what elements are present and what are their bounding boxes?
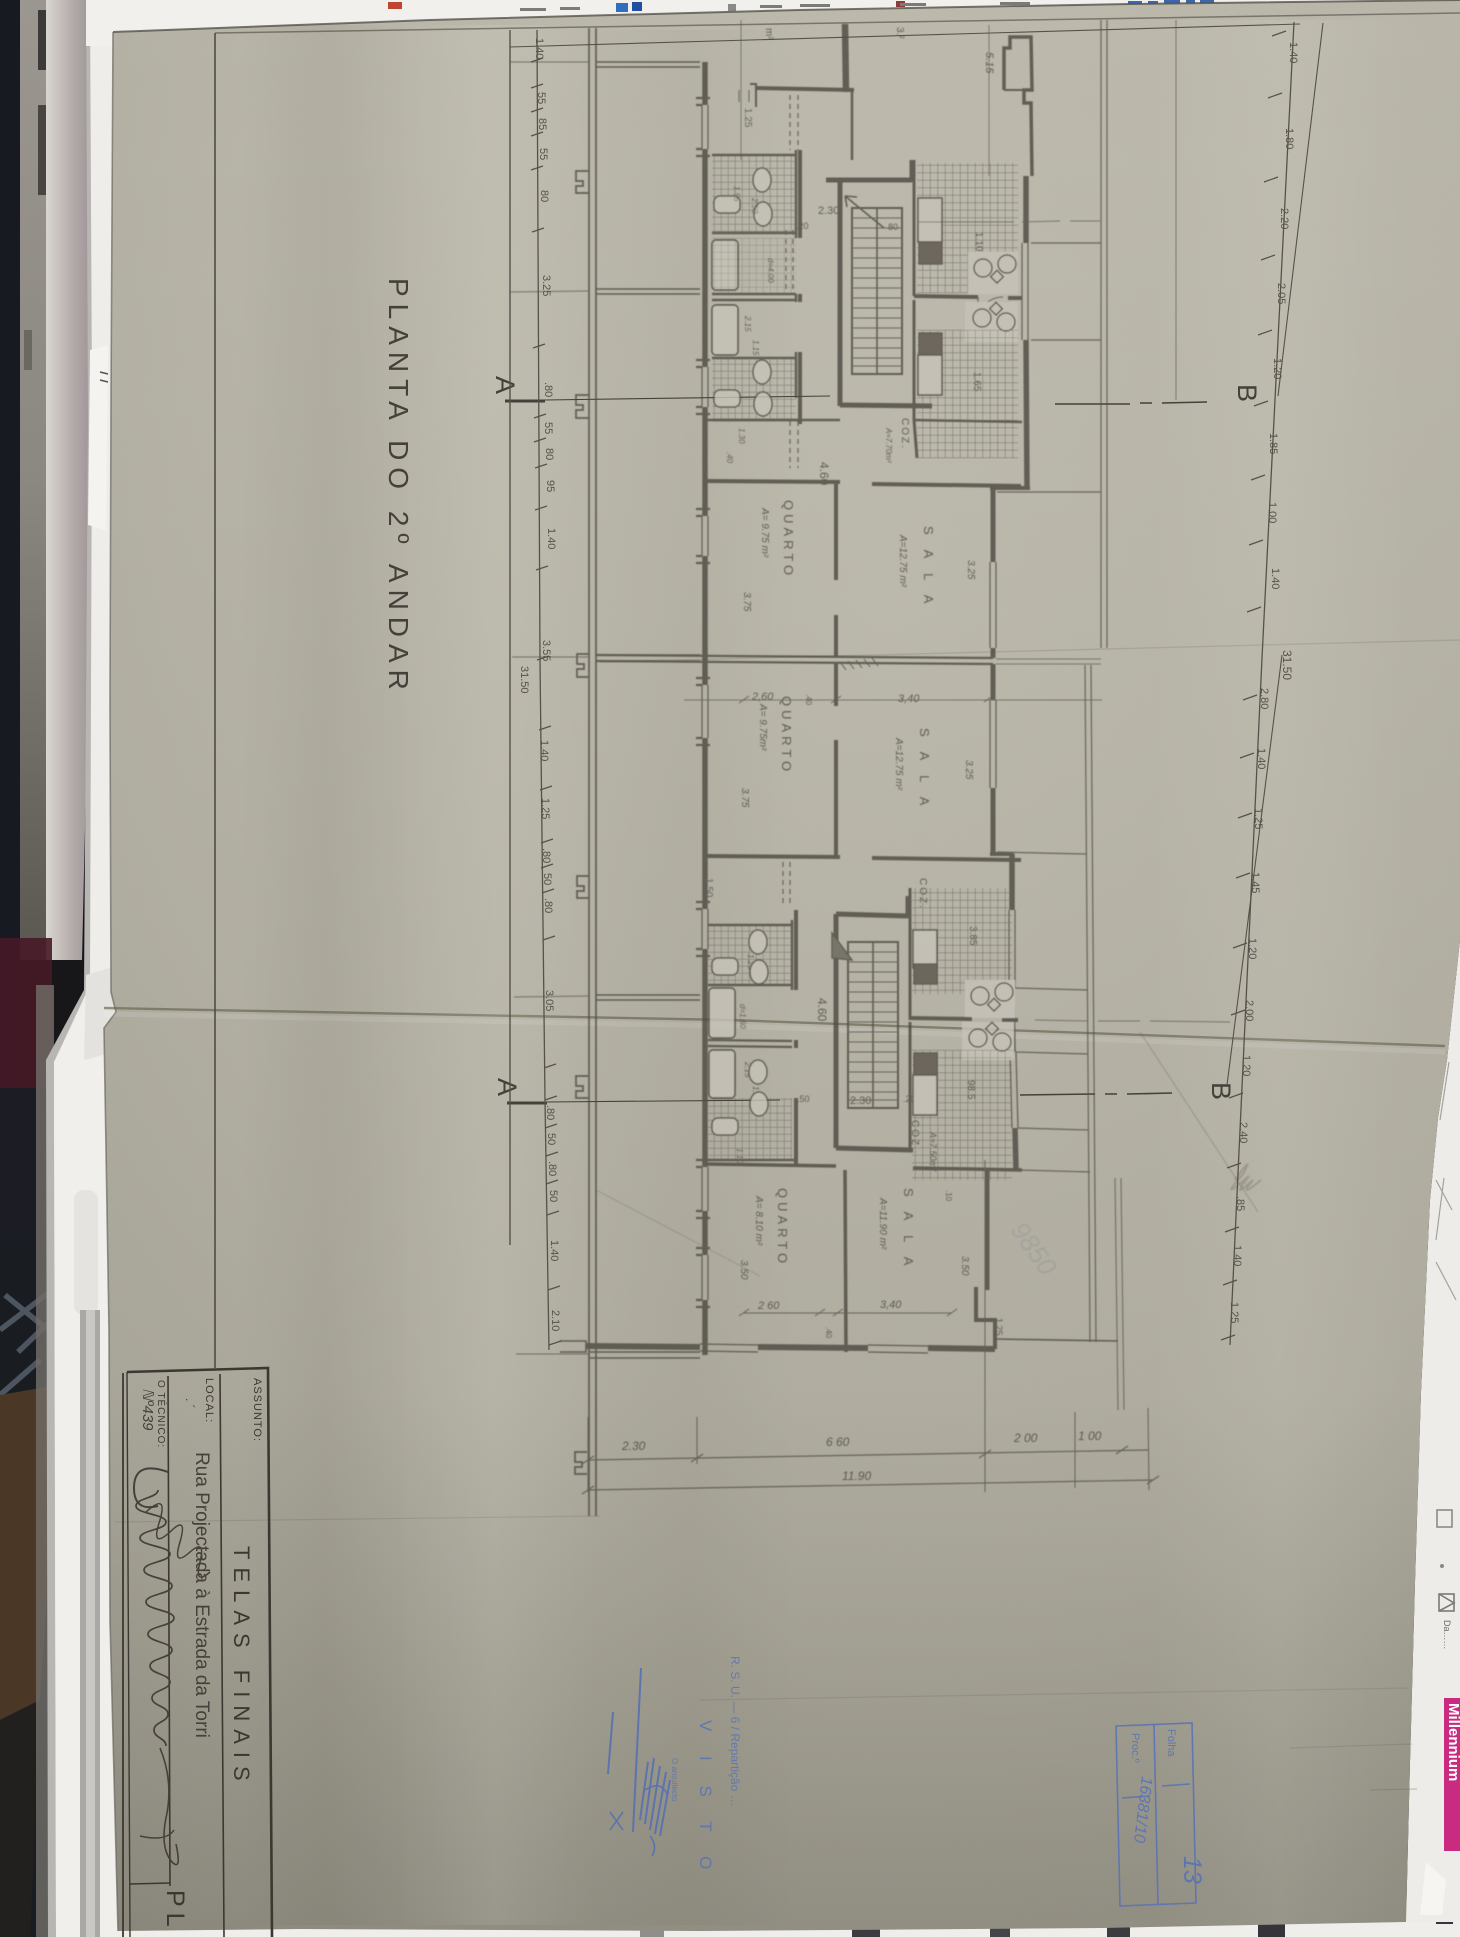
svg-text:.40: .40 <box>824 1327 833 1339</box>
svg-text:31.50: 31.50 <box>1280 650 1294 680</box>
svg-text:.80: .80 <box>546 1161 558 1176</box>
svg-text:3.55: 3.55 <box>540 640 552 661</box>
svg-text:QUARTO: QUARTO <box>775 1188 790 1267</box>
svg-text:2.30: 2.30 <box>818 205 839 217</box>
svg-text:S A L A: S A L A <box>917 728 932 811</box>
svg-text:1.40: 1.40 <box>548 1240 560 1261</box>
svg-text:2.20: 2.20 <box>1278 208 1290 229</box>
svg-text:1.80: 1.80 <box>1283 128 1295 149</box>
svg-text:3,40: 3,40 <box>898 693 920 705</box>
svg-text:5.15: 5.15 <box>983 52 995 74</box>
svg-text:O arquitecto: O arquitecto <box>670 1758 679 1802</box>
svg-text:50: 50 <box>541 873 553 885</box>
svg-text:QUARTO: QUARTO <box>781 500 796 579</box>
svg-text:3.25: 3.25 <box>963 760 974 780</box>
svg-text:80: 80 <box>538 190 550 202</box>
svg-text:55: 55 <box>535 92 547 104</box>
svg-text:2.15: 2.15 <box>743 315 752 332</box>
svg-text:.80: .80 <box>542 382 554 397</box>
svg-text:98.5: 98.5 <box>965 1080 976 1100</box>
svg-text:.50: .50 <box>797 1094 810 1104</box>
svg-text:3.25: 3.25 <box>540 275 552 296</box>
svg-text:Millennium: Millennium <box>1445 1703 1460 1781</box>
svg-text:A=11.90 m²: A=11.90 m² <box>877 1197 888 1250</box>
svg-text:2.30: 2.30 <box>621 1439 646 1453</box>
svg-text:1.40: 1.40 <box>538 740 550 761</box>
svg-text:1.20: 1.20 <box>1240 1055 1252 1076</box>
svg-text:Da……: Da…… <box>1442 1620 1452 1650</box>
svg-text:11.90: 11.90 <box>842 1469 871 1483</box>
svg-text:.80: .80 <box>540 848 552 863</box>
svg-text:.85: .85 <box>1234 1196 1246 1211</box>
svg-text:1.85: 1.85 <box>1267 433 1279 454</box>
svg-text:1.25: 1.25 <box>742 108 753 128</box>
svg-text:13: 13 <box>1178 1856 1206 1884</box>
svg-text:2.05: 2.05 <box>1275 283 1287 304</box>
svg-text:1.40: 1.40 <box>1287 42 1299 63</box>
svg-text:TELAS FINAIS: TELAS FINAIS <box>229 1546 254 1789</box>
svg-text:ℕº439: ℕº439 <box>139 1388 156 1431</box>
svg-text:PL: PL <box>161 1890 189 1933</box>
svg-text:COZ.: COZ. <box>899 418 910 450</box>
svg-text:Folha: Folha <box>1165 1729 1177 1757</box>
svg-text:R. S. U. — 6 / Repartição …: R. S. U. — 6 / Repartição … <box>728 1656 742 1807</box>
svg-text:S A L A: S A L A <box>921 526 936 609</box>
svg-text:A= 9.75m²: A= 9.75m² <box>757 703 768 751</box>
svg-text:d=4.00: d=4.00 <box>766 258 775 283</box>
svg-text:ASSUNTO:: ASSUNTO: <box>251 1378 263 1442</box>
svg-text:6 60: 6 60 <box>826 1435 850 1449</box>
svg-text:2.00: 2.00 <box>1243 1000 1255 1021</box>
svg-text:S A L A: S A L A <box>901 1188 916 1271</box>
svg-text:55: 55 <box>542 422 554 434</box>
svg-text:. ´: . ´ <box>183 1398 197 1409</box>
svg-text:1.00: 1.00 <box>1266 502 1278 523</box>
svg-text:1 00: 1 00 <box>1078 1429 1102 1443</box>
svg-text:A= 9.75 m²: A= 9.75 m² <box>759 507 770 558</box>
svg-text:3.85: 3.85 <box>967 926 978 946</box>
svg-text:1.45: 1.45 <box>1249 872 1261 893</box>
svg-text:2 60: 2 60 <box>757 1300 780 1312</box>
svg-text:3.25: 3.25 <box>965 560 976 580</box>
svg-text:3.50: 3.50 <box>738 1260 749 1280</box>
svg-text:1.25: 1.25 <box>539 798 551 819</box>
svg-text:1.40: 1.40 <box>1255 748 1267 769</box>
svg-text:55: 55 <box>537 148 549 160</box>
svg-text:1.25: 1.25 <box>994 1318 1004 1336</box>
svg-text:2.40: 2.40 <box>1237 1122 1249 1143</box>
svg-text:2,60: 2,60 <box>751 691 774 703</box>
svg-text:50: 50 <box>545 1133 557 1145</box>
svg-text:1.40: 1.40 <box>1231 1245 1243 1266</box>
svg-text:COZ.: COZ. <box>909 1120 920 1152</box>
svg-text:1.25: 1.25 <box>1228 1302 1240 1323</box>
svg-text:A≈7.70m²: A≈7.70m² <box>884 427 893 463</box>
svg-text:.80: .80 <box>544 1105 556 1120</box>
svg-text:1.50: 1.50 <box>703 878 714 898</box>
svg-text:3.50: 3.50 <box>959 1256 970 1276</box>
svg-text:1.40: 1.40 <box>1269 568 1281 589</box>
svg-text:A≈7.50m²: A≈7.50m² <box>928 1131 938 1172</box>
svg-text:4.60: 4.60 <box>815 998 829 1022</box>
svg-text:.40: .40 <box>804 694 813 706</box>
svg-text:.10: .10 <box>944 1190 953 1202</box>
svg-text:85: 85 <box>536 118 548 130</box>
svg-text:LOCAL:: LOCAL: <box>203 1378 215 1423</box>
svg-text:1.10: 1.10 <box>973 232 984 252</box>
svg-text:50: 50 <box>547 1190 559 1202</box>
svg-text:1.20: 1.20 <box>1271 358 1283 379</box>
svg-text:2.50: 2.50 <box>750 197 759 214</box>
svg-text:80: 80 <box>543 448 555 460</box>
svg-text:A: A <box>492 1078 522 1096</box>
svg-text:2.30: 2.30 <box>850 1095 871 1107</box>
svg-text:3.05: 3.05 <box>543 990 555 1011</box>
svg-text:3.²: 3.² <box>894 27 905 39</box>
svg-text:QUARTO: QUARTO <box>779 696 794 775</box>
svg-text:A=12.75 m²: A=12.75 m² <box>897 534 908 588</box>
svg-text:B: B <box>1232 384 1262 402</box>
svg-text:V I S T O: V I S T O <box>696 1720 715 1879</box>
svg-text:1.20: 1.20 <box>1246 938 1258 959</box>
svg-text:80: 80 <box>888 222 898 232</box>
svg-text:m²: m² <box>763 28 774 40</box>
svg-text:d=1.60: d=1.60 <box>738 1004 747 1029</box>
svg-text:COZ.: COZ. <box>917 878 928 910</box>
svg-text:A= 8.10 m²: A= 8.10 m² <box>753 1195 764 1246</box>
svg-text:A=12.75 m²: A=12.75 m² <box>893 737 904 791</box>
svg-text:.40: .40 <box>725 452 734 464</box>
svg-text:2.10: 2.10 <box>549 1310 561 1331</box>
svg-text:31.50: 31.50 <box>518 666 530 694</box>
svg-text:3.75: 3.75 <box>739 788 750 808</box>
svg-text:.80: .80 <box>542 898 554 913</box>
svg-text:Proc.º: Proc.º <box>1129 1733 1141 1763</box>
svg-text:1.40: 1.40 <box>545 528 557 549</box>
svg-text:2 00: 2 00 <box>1013 1431 1038 1445</box>
svg-text:1.15: 1.15 <box>751 340 760 356</box>
svg-text:1.40: 1.40 <box>533 38 545 59</box>
svg-text:1.55: 1.55 <box>732 186 741 202</box>
svg-text:PLANTA DO 2º ANDAR: PLANTA DO 2º ANDAR <box>383 278 414 697</box>
svg-text:3,40: 3,40 <box>880 1299 902 1311</box>
svg-text:1.25: 1.25 <box>1252 808 1264 829</box>
svg-text:3.75: 3.75 <box>741 592 752 612</box>
svg-text:1.30: 1.30 <box>737 428 746 444</box>
svg-text:Rua Projectada à Estrada da To: Rua Projectada à Estrada da Torri <box>191 1452 212 1738</box>
svg-text:A: A <box>490 376 520 394</box>
svg-text:95: 95 <box>544 480 556 492</box>
svg-text:1.65: 1.65 <box>971 372 982 392</box>
svg-text:.20: .20 <box>796 221 809 231</box>
svg-text:2.80: 2.80 <box>1258 688 1270 709</box>
